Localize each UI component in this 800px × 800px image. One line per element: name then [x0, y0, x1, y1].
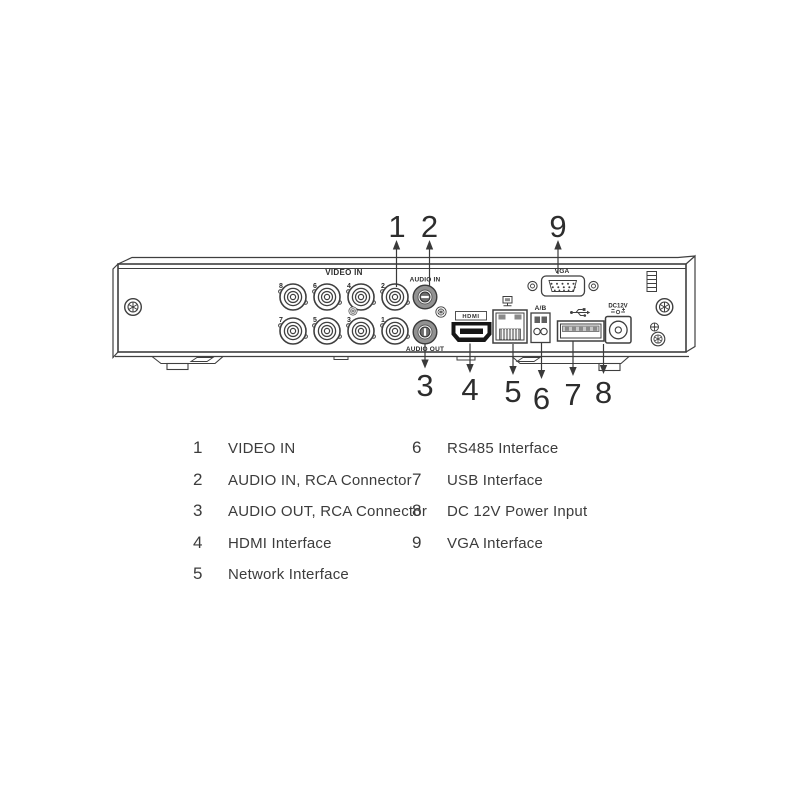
callout-number: 6: [533, 381, 550, 416]
legend-item-number: 9: [412, 533, 447, 553]
callout-number: 9: [549, 209, 566, 244]
legend-item-label: AUDIO IN, RCA Connector: [228, 472, 412, 489]
legend-item-number: 2: [193, 470, 228, 490]
legend-item-label: AUDIO OUT, RCA Connector: [228, 503, 427, 520]
callout-number: 4: [461, 372, 478, 407]
legend-item-label: HDMI Interface: [228, 535, 332, 552]
audio-in-label: AUDIO IN: [410, 277, 441, 284]
audio-in-rca: [413, 285, 437, 309]
bnc-number: 6: [313, 283, 317, 290]
screw-icon: [656, 299, 673, 316]
legend-item-number: 3: [193, 501, 228, 521]
legend-item-label: DC 12V Power Input: [447, 503, 587, 520]
legend-item: 4 HDMI Interface: [193, 533, 427, 565]
callout-number: 8: [595, 375, 612, 410]
bnc-number: 5: [313, 317, 317, 324]
legend-item: 3 AUDIO OUT, RCA Connector: [193, 501, 427, 533]
vga-label: VGA: [555, 268, 570, 275]
legend-item: 9 VGA Interface: [412, 533, 587, 565]
ground-screw-icon: [651, 323, 659, 331]
legend-item: 6 RS485 Interface: [412, 438, 587, 470]
bnc-number: 4: [347, 283, 351, 290]
legend-item: 5 Network Interface: [193, 564, 427, 596]
legend-item: 2 AUDIO IN, RCA Connector: [193, 470, 427, 502]
legend-item-label: VGA Interface: [447, 535, 543, 552]
bottom-tab: [334, 357, 348, 360]
screw-icon: [436, 307, 446, 317]
bnc-number: 8: [279, 283, 283, 290]
callout-number: 5: [504, 374, 521, 409]
callout-number: 3: [416, 368, 433, 403]
legend-item-label: Network Interface: [228, 566, 349, 583]
legend-column-2: 6 RS485 Interface 7 USB Interface 8 DC 1…: [412, 438, 587, 564]
arrow-down-icon: [569, 367, 576, 376]
hdmi-port: HDMI: [452, 312, 491, 342]
legend-item-number: 8: [412, 501, 447, 521]
screw-icon: [125, 299, 142, 316]
bnc-number: 1: [381, 317, 385, 324]
legend-item: 7 USB Interface: [412, 470, 587, 502]
left-foot: [152, 357, 223, 370]
bnc-number: 3: [347, 317, 351, 324]
bnc-number: 2: [381, 283, 385, 290]
chassis: [113, 256, 695, 371]
screw-icon: [349, 307, 357, 315]
arrow-down-icon: [600, 365, 607, 374]
dc-power-jack: DC12V: [606, 304, 632, 344]
callout-6: 6: [533, 343, 550, 416]
legend-item-number: 1: [193, 438, 228, 458]
audio-out-rca: [413, 320, 437, 344]
callout-8: 8: [595, 344, 612, 410]
rear-panel-diagram: VIDEO IN 8 6 4 2 7 5 3 1: [0, 0, 800, 430]
legend-item-number: 6: [412, 438, 447, 458]
arrow-down-icon: [538, 370, 545, 379]
callout-5: 5: [504, 344, 521, 409]
callout-number: 1: [388, 209, 405, 244]
vga-screw-post: [589, 281, 598, 290]
diagram-canvas: VIDEO IN 8 6 4 2 7 5 3 1: [0, 0, 800, 800]
legend-item-number: 4: [193, 533, 228, 553]
bnc-number: 7: [279, 317, 283, 324]
legend-item-label: USB Interface: [447, 472, 543, 489]
callout-number: 2: [421, 209, 438, 244]
hdmi-label: HDMI: [462, 314, 479, 320]
legend-column-1: 1 VIDEO IN 2 AUDIO IN, RCA Connector 3 A…: [193, 438, 427, 596]
legend-item-label: VIDEO IN: [228, 440, 295, 457]
legend-item: 8 DC 12V Power Input: [412, 501, 587, 533]
screw-icon: [651, 332, 665, 346]
legend-item: 1 VIDEO IN: [193, 438, 427, 470]
vent-grille: [647, 272, 657, 292]
legend-item-number: 7: [412, 470, 447, 490]
video-in-label: VIDEO IN: [325, 268, 363, 277]
legend-item-number: 5: [193, 564, 228, 584]
dc12v-label: DC12V: [608, 304, 627, 310]
callout-number: 7: [564, 377, 581, 412]
callout-4: 4: [461, 344, 478, 408]
legend-item-label: RS485 Interface: [447, 440, 558, 457]
rs485-ab-label: A/B: [535, 305, 547, 312]
vga-screw-post: [528, 281, 537, 290]
